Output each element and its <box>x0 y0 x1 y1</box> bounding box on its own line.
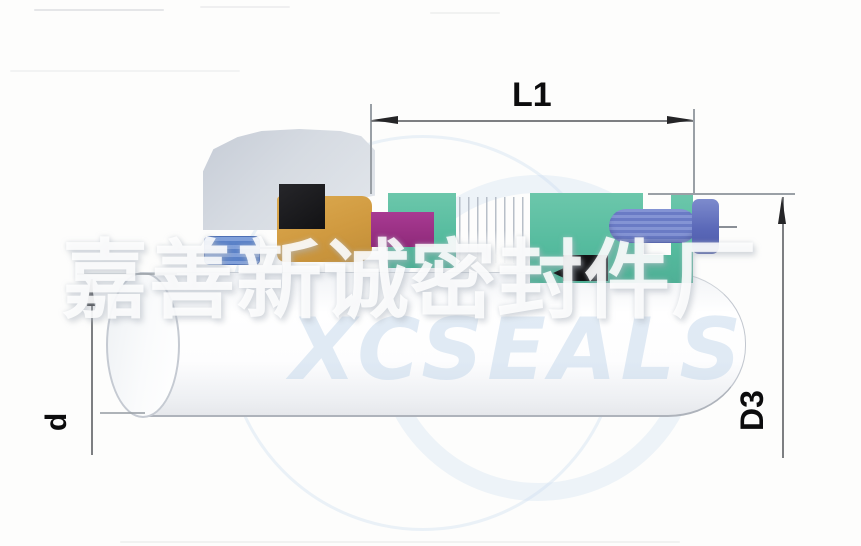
scan-streak <box>200 6 290 8</box>
seal-face-ring <box>279 184 325 229</box>
scan-streak <box>34 9 164 11</box>
scan-streak <box>120 541 680 543</box>
l1-dimension-line <box>371 120 693 122</box>
d3-dimension-line <box>782 197 784 458</box>
l1-dimension-label: L1 <box>512 76 552 115</box>
d3-dimension-label: D3 <box>734 390 771 431</box>
d-dimension-label: d <box>40 413 74 431</box>
l1-extension-line-right <box>693 109 695 195</box>
scan-streak <box>10 70 240 72</box>
d3-extension-line <box>648 193 795 195</box>
l1-arrow-right-icon <box>667 116 693 124</box>
d3-arrow-up-icon <box>778 197 786 224</box>
l1-arrow-left-icon <box>372 116 398 124</box>
d-extension-line-bottom <box>100 412 145 414</box>
scan-streak <box>430 12 500 14</box>
company-watermark-text: 嘉善新诚密封件厂 <box>62 238 762 324</box>
set-screw-pointer-line <box>719 226 737 228</box>
seal-drawing-canvas: XCSEALS L1 D3 d 嘉善新诚密封件厂 <box>0 0 861 546</box>
